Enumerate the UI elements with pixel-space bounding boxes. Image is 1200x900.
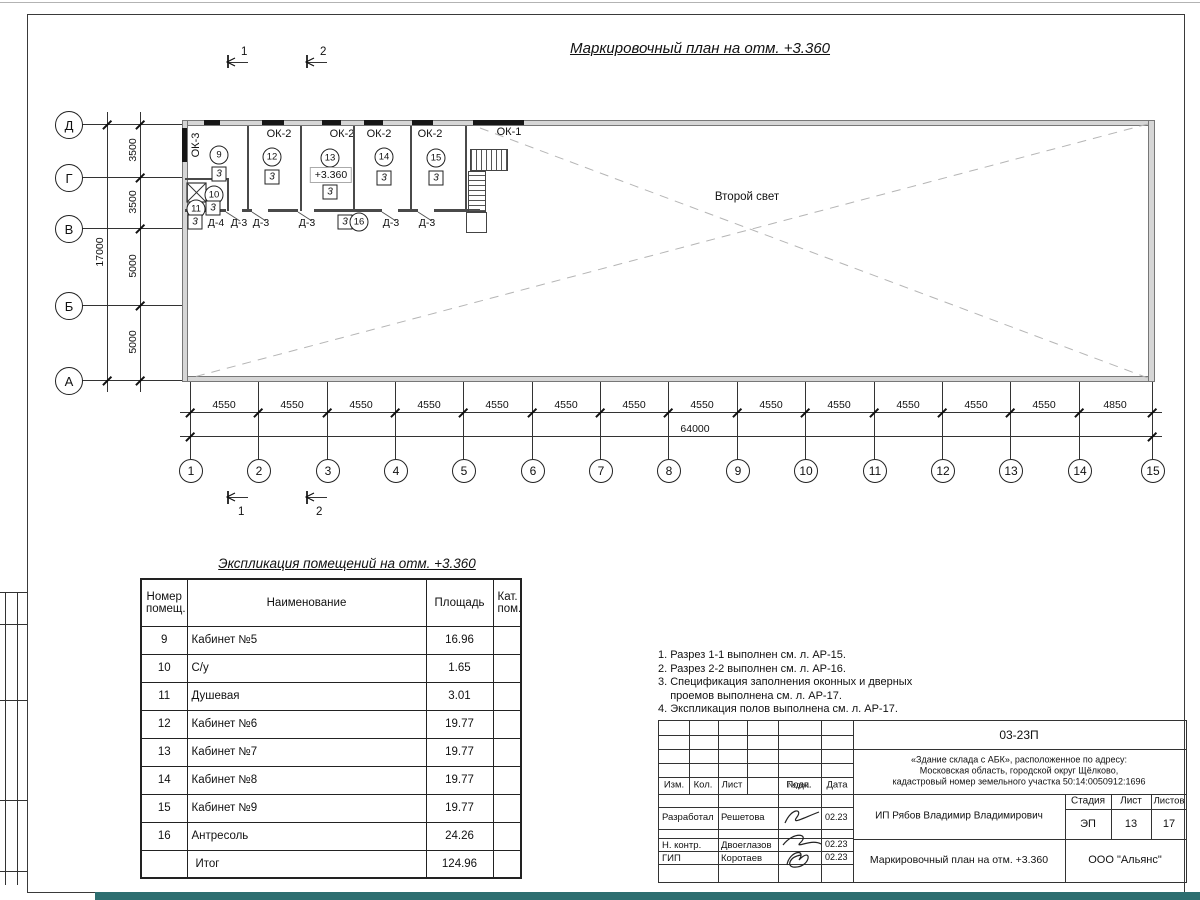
- dimension-line: [140, 112, 141, 392]
- total-area: 124.96: [426, 850, 493, 878]
- dimension-value: 4850: [1103, 399, 1126, 411]
- row-axis-bubble: А: [55, 367, 83, 395]
- room-cat: [493, 710, 521, 738]
- project-object: «Здание склада с АБК», расположенное по …: [893, 755, 1146, 788]
- role-date: 02.23: [825, 852, 848, 862]
- col-axis-bubble: 12: [931, 459, 955, 483]
- table-title: Экспликация помещений на отм. +3.360: [218, 556, 476, 571]
- table-row: 15Кабинет №919.77: [141, 794, 521, 822]
- room-cat: [493, 850, 521, 878]
- stage-label: Стадия: [1071, 796, 1105, 807]
- col-axis-bubble: 9: [726, 459, 750, 483]
- room-area: 19.77: [426, 710, 493, 738]
- stage-value: ЭП: [1080, 818, 1096, 830]
- stamp-line: [659, 829, 853, 830]
- drawing-title: Маркировочный план на отм. +3.360: [570, 40, 830, 57]
- room-area: 19.77: [426, 794, 493, 822]
- column-line: [463, 382, 464, 459]
- section-arrow-icon: [305, 57, 315, 67]
- title-block: 03-23П «Здание склада с АБК», расположен…: [658, 720, 1187, 883]
- stamp-line: [718, 721, 719, 882]
- room-number-marker: 14: [375, 148, 394, 167]
- category-marker: 3: [323, 185, 338, 200]
- dimension-total: 64000: [680, 423, 709, 435]
- stamp-line: [659, 851, 853, 852]
- margin-line: [5, 592, 6, 885]
- section-arrow-icon: [305, 492, 315, 502]
- section-label: 2: [320, 46, 326, 58]
- stamp-header-podp: Подп.: [786, 780, 811, 791]
- room-name: Антресоль: [187, 822, 426, 850]
- bottom-accent-bar: [95, 892, 1200, 900]
- table-row: 13Кабинет №719.77: [141, 738, 521, 766]
- role-name: Решетова: [721, 812, 765, 823]
- col-header-area: Площадь: [426, 579, 493, 626]
- section-label: 1: [238, 506, 244, 518]
- column-line: [1010, 382, 1011, 459]
- room-area: 24.26: [426, 822, 493, 850]
- stamp-line: [1111, 794, 1112, 839]
- col-header-name: Наименование: [187, 579, 426, 626]
- dimension-value: 4550: [690, 399, 713, 411]
- sheet-value: 13: [1125, 818, 1137, 830]
- column-line: [600, 382, 601, 459]
- room-area: 3.01: [426, 682, 493, 710]
- room-cat: [493, 626, 521, 654]
- axis-line: [81, 228, 183, 229]
- door-label: Д-4: [208, 217, 224, 229]
- drawing-sheet: { "plan": { "title": "Маркировочный план…: [0, 0, 1200, 900]
- dimension-value: 4550: [896, 399, 919, 411]
- room-number-marker: 13: [321, 149, 340, 168]
- room-area: 19.77: [426, 738, 493, 766]
- dimension-value: 4550: [485, 399, 508, 411]
- column-line: [532, 382, 533, 459]
- door-label: Д-3: [383, 217, 399, 229]
- room-name: Кабинет №5: [187, 626, 426, 654]
- role-label: Н. контр.: [662, 840, 701, 851]
- dimension-value: 4550: [827, 399, 850, 411]
- row-axis-bubble: Б: [55, 292, 83, 320]
- room-cat: [493, 738, 521, 766]
- dimension-value: 5000: [127, 254, 139, 277]
- dimension-value: 5000: [127, 330, 139, 353]
- door-label: Д-3: [253, 217, 269, 229]
- stamp-line: [659, 807, 853, 808]
- total-label: Итог: [187, 850, 426, 878]
- dimension-value: 4550: [417, 399, 440, 411]
- table-row: 14Кабинет №819.77: [141, 766, 521, 794]
- room-number: 10: [141, 654, 187, 682]
- door-label: Д-3: [299, 217, 315, 229]
- room-number-marker: 15: [427, 149, 446, 168]
- section-label: 2: [316, 506, 322, 518]
- dimension-value: 4550: [349, 399, 372, 411]
- dimension-value: 4550: [964, 399, 987, 411]
- row-axis-bubble: В: [55, 215, 83, 243]
- row-axis-bubble: Г: [55, 164, 83, 192]
- room-number-marker: 9: [210, 146, 229, 165]
- sheets-value: 17: [1163, 818, 1175, 830]
- role-label: Разработал: [662, 812, 714, 823]
- dimension-value: 4550: [1032, 399, 1055, 411]
- stamp-line: [659, 777, 853, 778]
- role-date: 02.23: [825, 839, 848, 849]
- table-row: 11Душевая3.01: [141, 682, 521, 710]
- column-line: [737, 382, 738, 459]
- project-code: 03-23П: [999, 728, 1038, 742]
- room-number: 15: [141, 794, 187, 822]
- room-number: 16: [141, 822, 187, 850]
- column-line: [190, 382, 191, 459]
- category-marker: 3: [188, 215, 203, 230]
- col-axis-bubble: 6: [521, 459, 545, 483]
- stamp-line: [659, 763, 853, 764]
- company-name: ООО "Альянс": [1088, 854, 1162, 866]
- col-header-cat: Кат. пом.: [493, 579, 521, 626]
- dimension-line: [107, 112, 108, 392]
- column-line: [1079, 382, 1080, 459]
- column-line: [258, 382, 259, 459]
- room-area: 19.77: [426, 766, 493, 794]
- column-line: [395, 382, 396, 459]
- col-axis-bubble: 15: [1141, 459, 1165, 483]
- column-line: [805, 382, 806, 459]
- dimension-value: 4550: [212, 399, 235, 411]
- table-row: 10С/у1.65: [141, 654, 521, 682]
- stamp-header-izm: Изм.: [664, 780, 684, 791]
- stamp-header-kol: Кол.: [694, 780, 713, 791]
- dimension-value: 4550: [759, 399, 782, 411]
- room-name: Душевая: [187, 682, 426, 710]
- room-cat: [493, 654, 521, 682]
- stamp-line: [1065, 794, 1066, 882]
- role-name: Коротаев: [721, 853, 762, 864]
- explication-table: Номер помещ. Наименование Площадь Кат. п…: [140, 578, 522, 879]
- column-line: [942, 382, 943, 459]
- room-number-marker: 12: [263, 148, 282, 167]
- table-row: 9Кабинет №516.96: [141, 626, 521, 654]
- room-name: Кабинет №6: [187, 710, 426, 738]
- column-line: [668, 382, 669, 459]
- room-number-marker: 16: [350, 213, 369, 232]
- axis-line: [81, 380, 183, 381]
- sheet-label: Лист: [1120, 796, 1142, 807]
- margin-line: [0, 700, 27, 701]
- room-number: [141, 850, 187, 878]
- room-number: 11: [141, 682, 187, 710]
- section-arrow-icon: [226, 57, 236, 67]
- room-cat: [493, 766, 521, 794]
- stamp-line: [659, 864, 853, 865]
- col-axis-bubble: 7: [589, 459, 613, 483]
- role-name: Двоеглазов: [721, 840, 772, 851]
- stamp-line: [853, 839, 1186, 840]
- margin-line: [0, 592, 27, 593]
- stamp-line: [747, 721, 748, 794]
- room-number: 13: [141, 738, 187, 766]
- dimension-total: 17000: [94, 237, 106, 266]
- margin-line: [17, 592, 18, 885]
- room-area: 16.96: [426, 626, 493, 654]
- axis-line: [81, 177, 183, 178]
- col-axis-bubble: 13: [999, 459, 1023, 483]
- category-marker: 3: [377, 171, 392, 186]
- col-axis-bubble: 11: [863, 459, 887, 483]
- second-light-label: Второй свет: [715, 191, 779, 203]
- col-axis-bubble: 8: [657, 459, 681, 483]
- axis-line: [81, 124, 183, 125]
- col-axis-bubble: 10: [794, 459, 818, 483]
- stamp-line: [659, 794, 1186, 795]
- stamp-header-list: Лист: [722, 780, 743, 791]
- stamp-line: [1151, 794, 1152, 839]
- col-axis-bubble: 1: [179, 459, 203, 483]
- top-divider-line: [0, 2, 1200, 3]
- table-row: 12Кабинет №619.77: [141, 710, 521, 738]
- col-header-number: Номер помещ.: [141, 579, 187, 626]
- role-date: 02.23: [825, 812, 848, 822]
- category-marker: 3: [206, 201, 221, 216]
- room-name: Кабинет №9: [187, 794, 426, 822]
- col-axis-bubble: 14: [1068, 459, 1092, 483]
- section-label: 1: [241, 46, 247, 58]
- dimension-value: 3500: [127, 138, 139, 161]
- row-axis-bubble: Д: [55, 111, 83, 139]
- table-row-total: Итог124.96: [141, 850, 521, 878]
- col-axis-bubble: 4: [384, 459, 408, 483]
- room-name: С/у: [187, 654, 426, 682]
- notes-block: 1. Разрез 1-1 выполнен см. л. АР-15. 2. …: [658, 649, 912, 717]
- stamp-line: [853, 721, 854, 882]
- dimension-value: 4550: [280, 399, 303, 411]
- room-number: 14: [141, 766, 187, 794]
- stamp-drawing-title: Маркировочный план на отм. +3.360: [870, 854, 1048, 866]
- signature-scribbles: [779, 805, 823, 871]
- room-area: 1.65: [426, 654, 493, 682]
- stamp-line: [659, 749, 1186, 750]
- column-line: [874, 382, 875, 459]
- margin-line: [0, 871, 27, 872]
- col-axis-bubble: 2: [247, 459, 271, 483]
- margin-line: [0, 624, 27, 625]
- stamp-header-data: Дата: [826, 780, 847, 791]
- room-cat: [493, 794, 521, 822]
- column-line: [327, 382, 328, 459]
- dimension-line: [180, 436, 1162, 437]
- column-line: [1152, 382, 1153, 459]
- dimension-value: 4550: [554, 399, 577, 411]
- col-axis-bubble: 5: [452, 459, 476, 483]
- col-axis-bubble: 3: [316, 459, 340, 483]
- door-label: Д-3: [419, 217, 435, 229]
- dimension-value: 3500: [127, 190, 139, 213]
- sheets-label: Листов: [1154, 796, 1185, 807]
- category-marker: 3: [212, 167, 227, 182]
- role-label: ГИП: [662, 853, 681, 864]
- category-marker: 3: [429, 171, 444, 186]
- room-number: 12: [141, 710, 187, 738]
- stamp-line: [659, 735, 853, 736]
- stamp-line: [689, 721, 690, 794]
- room-number: 9: [141, 626, 187, 654]
- axis-line: [81, 305, 183, 306]
- room-name: Кабинет №8: [187, 766, 426, 794]
- elevation-marker: +3.360: [310, 167, 352, 183]
- dimension-value: 4550: [622, 399, 645, 411]
- margin-line: [0, 800, 27, 801]
- room-name: Кабинет №7: [187, 738, 426, 766]
- section-arrow-icon: [226, 492, 236, 502]
- room-cat: [493, 682, 521, 710]
- client-name: ИП Рябов Владимир Владимирович: [875, 811, 1043, 822]
- table-row: 16Антресоль24.26: [141, 822, 521, 850]
- category-marker: 3: [265, 170, 280, 185]
- room-cat: [493, 822, 521, 850]
- door-label: Д-3: [231, 217, 247, 229]
- stamp-line: [1065, 809, 1186, 810]
- stamp-line: [659, 838, 853, 839]
